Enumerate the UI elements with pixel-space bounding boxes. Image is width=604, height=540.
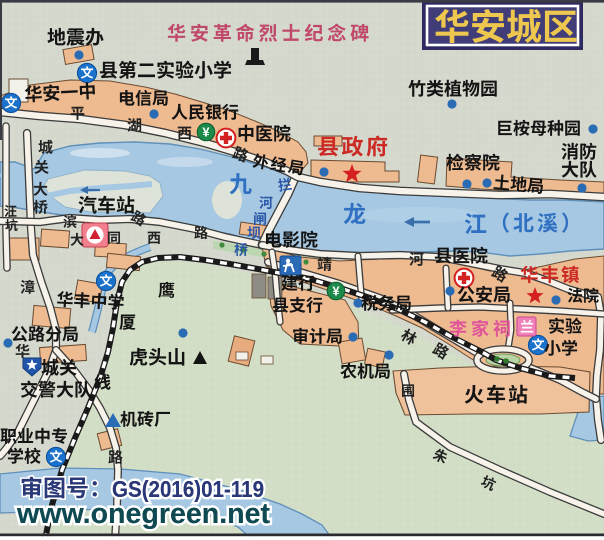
- svg-text:¥: ¥: [332, 284, 340, 299]
- svg-text:www.onegreen.net: www.onegreen.net: [16, 498, 271, 530]
- svg-text:¥: ¥: [202, 125, 210, 140]
